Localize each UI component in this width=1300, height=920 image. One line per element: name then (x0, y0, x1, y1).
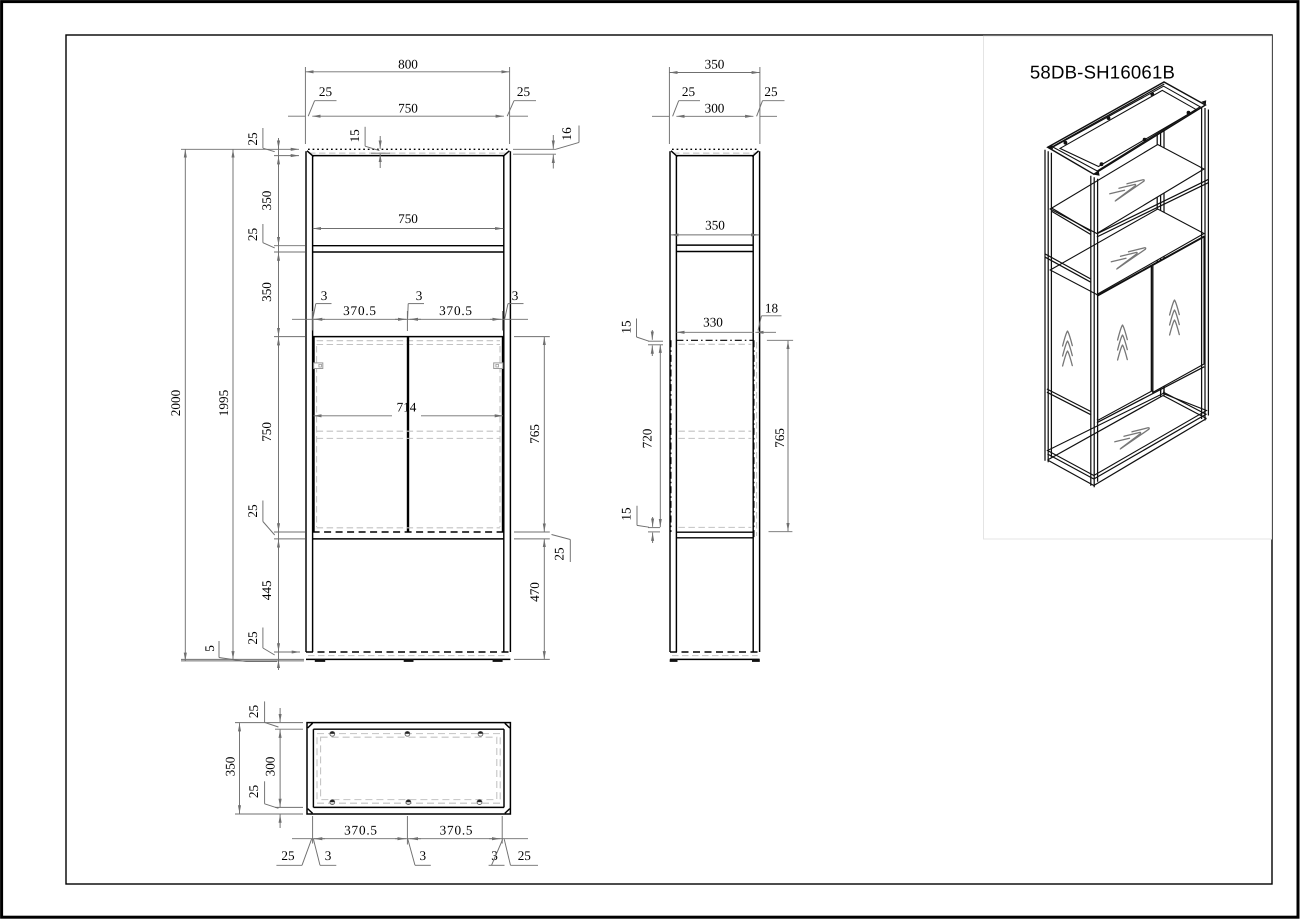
svg-text:5: 5 (202, 645, 217, 652)
svg-text:25: 25 (682, 84, 696, 99)
svg-text:25: 25 (245, 228, 260, 242)
svg-text:300: 300 (262, 756, 277, 776)
svg-text:25: 25 (245, 631, 260, 645)
svg-text:300: 300 (705, 101, 725, 116)
svg-text:15: 15 (618, 507, 633, 521)
svg-text:350: 350 (222, 756, 237, 776)
svg-text:3: 3 (420, 848, 427, 863)
svg-text:3: 3 (512, 288, 519, 303)
svg-text:3: 3 (325, 848, 332, 863)
svg-text:25: 25 (552, 547, 567, 561)
svg-text:25: 25 (246, 705, 261, 719)
svg-text:370.5: 370.5 (344, 823, 378, 838)
svg-text:370.5: 370.5 (343, 303, 377, 318)
svg-text:25: 25 (245, 132, 260, 146)
svg-text:25: 25 (517, 84, 531, 99)
svg-text:2000: 2000 (168, 389, 183, 416)
svg-text:58DB-SH16061B: 58DB-SH16061B (1030, 62, 1175, 83)
svg-text:25: 25 (764, 84, 778, 99)
svg-text:3: 3 (491, 848, 498, 863)
svg-text:15: 15 (347, 129, 362, 143)
svg-text:765: 765 (772, 428, 787, 448)
svg-text:750: 750 (398, 101, 418, 116)
svg-text:720: 720 (639, 428, 654, 448)
svg-text:750: 750 (398, 211, 418, 226)
svg-text:750: 750 (259, 422, 274, 442)
svg-text:370.5: 370.5 (440, 823, 474, 838)
svg-text:25: 25 (246, 785, 261, 799)
svg-text:370.5: 370.5 (439, 303, 473, 318)
svg-text:3: 3 (321, 288, 328, 303)
svg-text:25: 25 (281, 848, 295, 863)
svg-text:445: 445 (259, 580, 274, 600)
svg-text:15: 15 (618, 320, 633, 334)
svg-text:330: 330 (703, 315, 723, 330)
svg-text:16: 16 (559, 127, 574, 141)
svg-text:25: 25 (319, 84, 333, 99)
svg-text:350: 350 (705, 217, 725, 232)
svg-text:350: 350 (259, 190, 274, 210)
svg-text:714: 714 (397, 400, 417, 415)
svg-text:25: 25 (518, 848, 532, 863)
svg-text:3: 3 (416, 288, 423, 303)
svg-text:800: 800 (398, 56, 418, 71)
svg-text:765: 765 (527, 424, 542, 444)
svg-text:1995: 1995 (216, 389, 231, 416)
svg-text:18: 18 (765, 300, 779, 315)
svg-text:470: 470 (527, 582, 542, 602)
svg-text:350: 350 (705, 56, 725, 71)
svg-text:25: 25 (245, 504, 260, 518)
svg-text:350: 350 (259, 282, 274, 302)
